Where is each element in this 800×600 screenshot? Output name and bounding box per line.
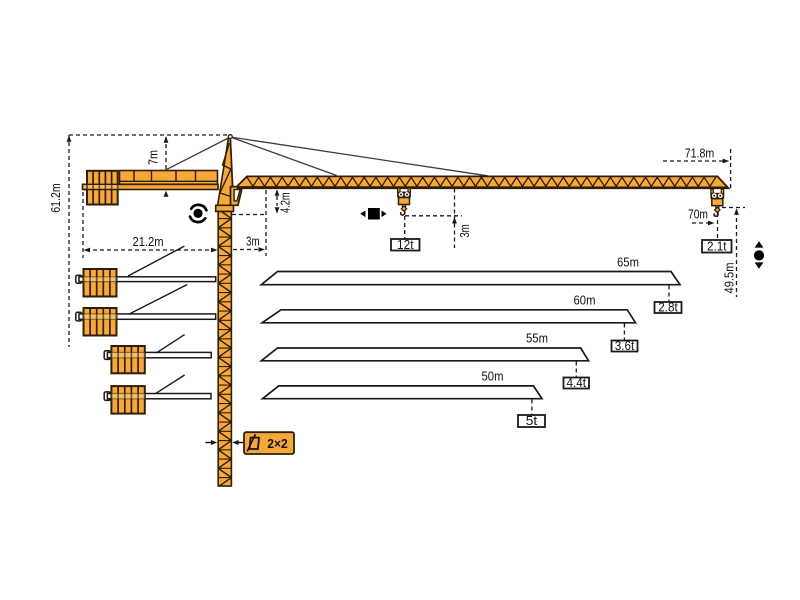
svg-text:3.6t: 3.6t [615,338,635,353]
svg-text:3m: 3m [457,224,472,238]
svg-text:61.2m: 61.2m [48,183,63,213]
svg-text:55m: 55m [526,331,548,346]
svg-text:70m: 70m [688,207,708,222]
svg-text:60m: 60m [574,293,596,308]
svg-text:2.8t: 2.8t [658,300,678,315]
svg-text:7m: 7m [146,150,161,165]
svg-text:50m: 50m [482,369,504,384]
svg-text:12t: 12t [397,237,414,252]
svg-text:49.5m: 49.5m [721,263,736,294]
svg-text:5t: 5t [526,413,538,428]
svg-text:4.2m: 4.2m [277,192,292,213]
svg-text:71.8m: 71.8m [685,146,715,161]
svg-text:2.1t: 2.1t [707,238,727,253]
svg-text:21.2m: 21.2m [133,234,164,249]
svg-text:3m: 3m [246,234,260,249]
svg-text:2×2: 2×2 [267,436,288,451]
svg-text:65m: 65m [617,254,639,269]
svg-text:4.4t: 4.4t [567,375,587,390]
